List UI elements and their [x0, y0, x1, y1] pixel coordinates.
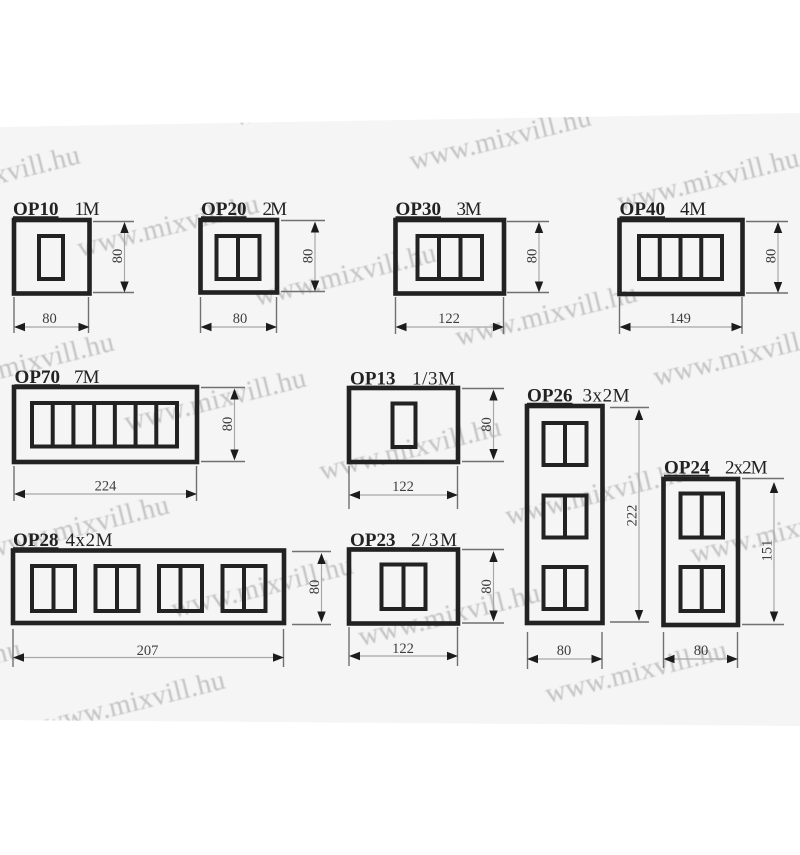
svg-text:1/3M: 1/3M	[412, 369, 455, 390]
svg-text:1M: 1M	[75, 199, 100, 220]
svg-text:80: 80	[42, 311, 57, 327]
svg-text:7M: 7M	[74, 367, 100, 388]
svg-text:224: 224	[95, 479, 118, 495]
svg-text:80: 80	[233, 311, 248, 327]
svg-text:207: 207	[137, 643, 159, 659]
svg-text:80: 80	[479, 579, 495, 594]
svg-text:3x2M: 3x2M	[583, 386, 630, 407]
svg-text:122: 122	[392, 641, 414, 657]
svg-text:122: 122	[392, 479, 414, 495]
svg-text:80: 80	[110, 249, 126, 264]
svg-text:2/3M: 2/3M	[411, 530, 457, 551]
svg-text:80: 80	[764, 249, 780, 264]
svg-text:3M: 3M	[457, 199, 482, 220]
svg-text:122: 122	[438, 311, 460, 327]
svg-text:151: 151	[760, 540, 776, 562]
svg-text:2x2M: 2x2M	[725, 458, 768, 479]
svg-text:80: 80	[694, 643, 709, 659]
svg-text:4x2M: 4x2M	[66, 530, 113, 551]
svg-text:222: 222	[625, 505, 641, 527]
svg-text:4M: 4M	[680, 199, 706, 220]
svg-text:80: 80	[525, 249, 541, 264]
svg-text:80: 80	[220, 417, 236, 432]
svg-text:149: 149	[669, 311, 691, 327]
svg-text:80: 80	[301, 249, 317, 264]
svg-text:80: 80	[479, 417, 495, 432]
svg-text:80: 80	[557, 643, 572, 659]
svg-text:2M: 2M	[263, 199, 288, 220]
svg-text:80: 80	[307, 580, 323, 595]
